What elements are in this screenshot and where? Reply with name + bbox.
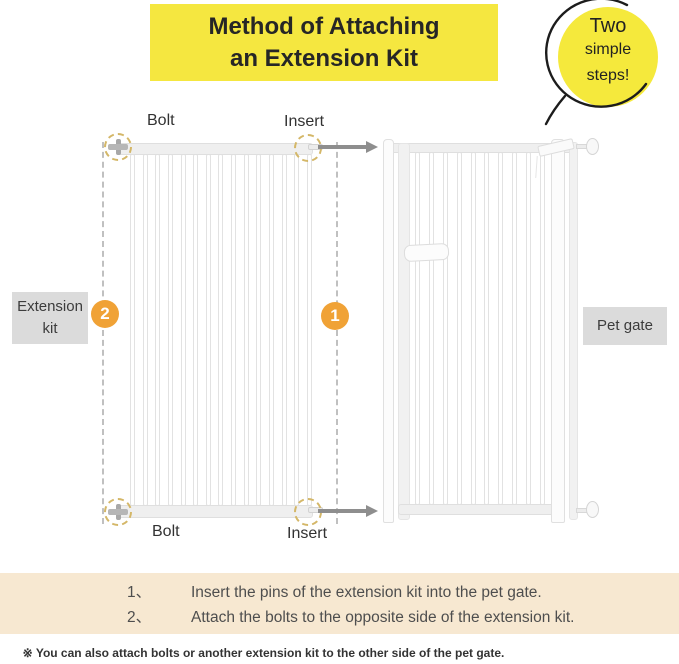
bolt-label-bottom: Bolt — [152, 523, 180, 541]
highlight-circle-bolt-bottom — [104, 498, 132, 526]
instruction-step-2-number: 2、 — [127, 605, 191, 630]
steps-badge: Two simple steps! — [543, 0, 679, 130]
step-marker-2: 2 — [91, 300, 119, 328]
extension-kit-bottom-rail — [117, 505, 313, 518]
instruction-step-2: 2、Attach the bolts to the opposite side … — [127, 605, 574, 630]
infographic-canvas: Method of Attaching an Extension Kit Two… — [0, 0, 679, 664]
arrow-right-icon-bottom — [318, 505, 378, 517]
instructions-panel: 1、Insert the pins of the extension kit i… — [0, 573, 679, 634]
pet-gate-left-post — [383, 139, 394, 523]
title-line1: Method of Attaching — [150, 11, 498, 43]
door-lock-handle-icon — [404, 243, 450, 262]
pet-gate-right-post — [551, 139, 565, 523]
pet-gate-hinge-post — [398, 143, 410, 520]
title-banner: Method of Attaching an Extension Kit — [150, 4, 498, 81]
footnote: ※ You can also attach bolts or another e… — [0, 646, 527, 660]
mount-knob-icon-bottom — [586, 501, 599, 518]
title-line2: an Extension Kit — [150, 43, 498, 75]
extension-kit-label: Extension kit — [12, 292, 88, 344]
pet-gate-bars — [415, 152, 545, 505]
guide-line-left — [102, 142, 104, 524]
highlight-circle-bolt-top — [104, 133, 132, 161]
insert-label-bottom: Insert — [287, 525, 327, 543]
step-marker-1: 1 — [321, 302, 349, 330]
pet-gate-bottom-rail — [398, 504, 556, 515]
instruction-step-2-text: Attach the bolts to the opposite side of… — [191, 609, 574, 626]
mount-knob-icon-top — [586, 138, 599, 155]
instruction-step-1-text: Insert the pins of the extension kit int… — [191, 584, 542, 601]
insert-label-top: Insert — [284, 113, 324, 131]
instruction-step-1: 1、Insert the pins of the extension kit i… — [127, 580, 574, 605]
instructions-list: 1、Insert the pins of the extension kit i… — [127, 580, 574, 630]
bolt-label-top: Bolt — [147, 112, 175, 130]
badge-text: Two simple steps! — [548, 14, 668, 86]
extension-kit-top-rail — [117, 143, 313, 155]
badge-line2: simple — [548, 40, 668, 60]
extension-kit-bars — [130, 154, 312, 506]
badge-line1: Two — [548, 14, 668, 38]
badge-line3: steps! — [548, 66, 668, 86]
pet-gate-mount-rail — [569, 142, 578, 520]
pet-gate-label: Pet gate — [583, 307, 667, 345]
instruction-step-1-number: 1、 — [127, 580, 191, 605]
guide-line-right — [336, 142, 338, 524]
arrow-right-icon-top — [318, 141, 378, 153]
